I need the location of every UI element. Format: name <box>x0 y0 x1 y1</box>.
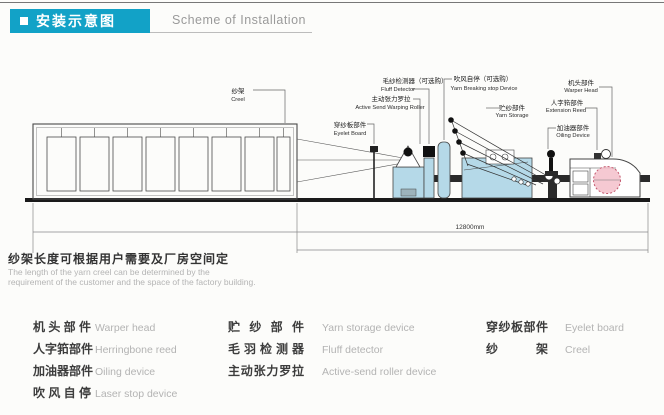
legend-term-cn: 人字筘部件 <box>33 340 91 357</box>
legend-term-en: Eyelet board <box>565 322 624 334</box>
label-reed-cn: 人字筘部件 <box>551 98 584 107</box>
legend-term-cn: 吹风自停 <box>33 384 91 401</box>
legend-term-cn: 主动张力罗拉 <box>228 362 304 379</box>
legend-row: 加油器部件 Oiling device <box>33 362 177 384</box>
label-storage-en: Yarn Storage <box>495 113 528 119</box>
legend-term-cn: 穿纱板部件 <box>486 318 548 335</box>
label-stop-en: Yarn Breaking stop Device <box>451 86 518 92</box>
beam-support <box>548 182 557 198</box>
legend-term-cn: 机头部件 <box>33 318 91 335</box>
label-warper-en: Warper Head <box>564 88 598 94</box>
legend-row: 主动张力罗拉 Active-send roller device <box>228 362 436 384</box>
label-stop-cn: 吹风自停（可选购） <box>454 74 513 83</box>
label-creel-en: Creel <box>231 97 245 103</box>
label-fluff-cn: 毛纱检测器（可选购） <box>383 76 448 85</box>
legend-column-2: 贮纱部件 Yarn storage device 毛羽检测器 Fluff det… <box>228 318 436 384</box>
yarn-storage-unit <box>448 117 560 198</box>
legend-row: 毛羽检测器 Fluff detector <box>228 340 436 362</box>
note-en-line2: requirement of the customer and the spac… <box>8 278 256 288</box>
creel-structure <box>33 124 297 199</box>
extension-reed-roller <box>602 150 611 159</box>
label-storage-cn: 贮纱部件 <box>499 103 526 112</box>
note-cn: 纱架长度可根据用户需要及厂房空间定 <box>8 250 229 267</box>
eyelet-board <box>370 146 378 199</box>
label-oiling-en: Oiling Device <box>556 133 590 139</box>
label-eyelet-en: Eyelet Board <box>334 131 367 137</box>
legend-row: 贮纱部件 Yarn storage device <box>228 318 436 340</box>
legend-term-en: Yarn storage device <box>322 322 415 334</box>
legend-row: 穿纱板部件 Eyelet board <box>486 318 624 340</box>
legend-term-en: Creel <box>565 344 590 356</box>
active-send-roller-unit <box>393 146 424 198</box>
dimension-label: 12800mm <box>456 224 485 231</box>
legend-row: 机头部件 Warper head <box>33 318 177 340</box>
laser-stop-column <box>438 142 450 198</box>
label-creel-cn: 纱架 <box>232 87 246 95</box>
label-warper-cn: 机头部件 <box>568 78 595 87</box>
label-roller-en: Active Send Warping Roller <box>355 105 424 111</box>
warper-head-unit <box>570 150 640 198</box>
note-en: The length of the yarn creel can be dete… <box>8 268 256 287</box>
yarn-lines <box>297 139 403 182</box>
label-reed-en: Extension Reed <box>546 108 586 114</box>
legend-term-cn: 加油器部件 <box>33 362 91 379</box>
legend-term-cn: 贮纱部件 <box>228 318 304 335</box>
label-roller-cn: 主动张力罗拉 <box>372 94 412 103</box>
legend-term-en: Laser stop device <box>95 388 177 400</box>
legend-row: 人字筘部件 Herringbone reed <box>33 340 177 362</box>
legend-term-en: Fluff detector <box>322 344 383 356</box>
legend-term-cn: 纱架 <box>486 340 548 357</box>
fluff-detector-unit <box>423 146 435 198</box>
legend-column-1: 机头部件 Warper head 人字筘部件 Herringbone reed … <box>33 318 177 406</box>
label-oiling-cn: 加油器部件 <box>557 123 590 132</box>
legend-term-en: Active-send roller device <box>322 366 436 378</box>
legend-row: 吹风自停 Laser stop device <box>33 384 177 406</box>
legend-row: 纱架 Creel <box>486 340 624 362</box>
legend-term-cn: 毛羽检测器 <box>228 340 304 357</box>
legend-column-3: 穿纱板部件 Eyelet board 纱架 Creel <box>486 318 624 362</box>
legend-term-en: Oiling device <box>95 366 155 378</box>
label-eyelet-cn: 穿纱板部件 <box>334 120 367 129</box>
dimension-lines <box>33 203 648 253</box>
leader-lines <box>253 79 612 157</box>
legend-term-en: Herringbone reed <box>95 344 177 356</box>
legend-term-en: Warper head <box>95 322 155 334</box>
oiling-device-unit <box>545 150 558 176</box>
installation-diagram: 12800mm 纱架 Creel 穿纱板部件 Eyelet Board 主动张力… <box>0 0 664 255</box>
label-fluff-en: Fluff Detector <box>381 87 415 93</box>
